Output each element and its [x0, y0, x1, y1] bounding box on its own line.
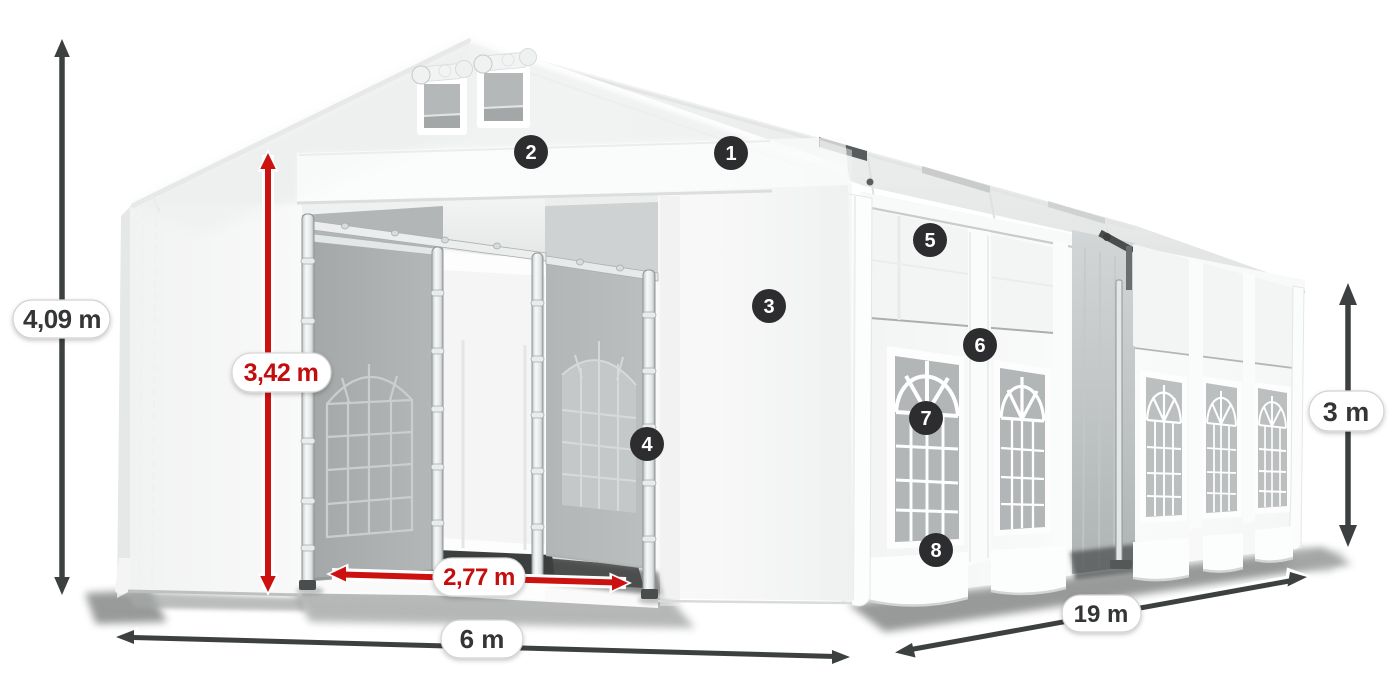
svg-text:1: 1	[725, 143, 736, 165]
svg-text:4,09 m: 4,09 m	[23, 304, 101, 334]
svg-text:3: 3	[763, 296, 774, 318]
svg-text:2,77 m: 2,77 m	[443, 564, 515, 591]
svg-text:8: 8	[930, 540, 941, 562]
svg-text:3,42 m: 3,42 m	[244, 359, 319, 387]
svg-text:6 m: 6 m	[460, 624, 505, 654]
svg-text:3 m: 3 m	[1323, 397, 1370, 427]
svg-text:6: 6	[974, 335, 985, 357]
svg-text:5: 5	[924, 230, 935, 252]
svg-text:7: 7	[920, 408, 931, 430]
svg-text:2: 2	[525, 142, 536, 164]
svg-text:4: 4	[641, 434, 653, 456]
svg-text:19 m: 19 m	[1074, 601, 1129, 628]
